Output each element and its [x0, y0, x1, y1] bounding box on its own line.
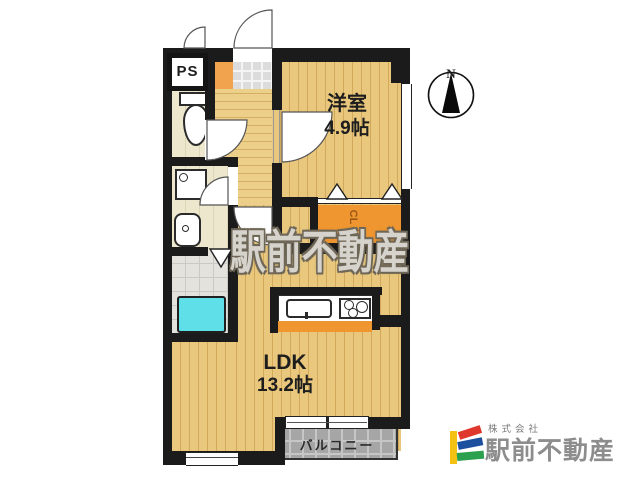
western-room-size: 4.9帖	[287, 117, 407, 141]
ps-label: PS	[172, 63, 203, 80]
logo-green-bar	[457, 451, 485, 461]
balcony-label: バルコニー	[278, 435, 396, 454]
washroom-doorway	[228, 167, 238, 205]
pillar	[391, 62, 410, 83]
wall	[172, 247, 208, 256]
entrance-tile	[233, 62, 272, 89]
entrance-door-arc	[234, 10, 272, 48]
ldk-size: 13.2帖	[215, 375, 355, 398]
logo-yellow-bar	[450, 431, 457, 464]
logo-company-name: 駅前不動産	[485, 431, 615, 467]
window	[186, 452, 238, 466]
meter-box-door-arc	[184, 27, 205, 48]
window-midline	[186, 457, 238, 458]
toilet-doorway	[205, 120, 215, 160]
wall	[372, 287, 380, 330]
kitchen-base-strip	[278, 321, 372, 332]
floor-plan-image: PS 洋室 4.9帖 LDK 13.2帖 CL バルコニー N 駅前不動産 株式…	[0, 0, 640, 480]
wall	[272, 48, 410, 62]
wall	[272, 62, 282, 110]
wall	[380, 315, 401, 327]
western-room-doorway	[273, 110, 274, 163]
company-logo: 株式会社 駅前不動産	[440, 418, 630, 470]
wall	[163, 333, 237, 342]
entrance-step	[215, 62, 233, 89]
western-room-label: 洋室 4.9帖	[287, 92, 407, 141]
wall	[163, 48, 172, 465]
sink-faucet	[305, 312, 308, 319]
western-room-doorway	[279, 110, 280, 163]
stove-burner	[348, 308, 358, 318]
wall	[369, 417, 402, 429]
wall	[272, 287, 382, 295]
bathtub	[177, 296, 226, 333]
pipe-space-box: PS	[167, 53, 208, 91]
wall	[270, 287, 278, 333]
closet-door-line	[318, 198, 401, 204]
wall	[172, 157, 228, 166]
compass-n-label: N	[443, 66, 459, 82]
washer-drain	[179, 173, 188, 182]
window-midline	[287, 422, 367, 423]
ldk-label: LDK 13.2帖	[215, 350, 355, 398]
basin-drain	[182, 225, 189, 232]
western-room-name: 洋室	[287, 92, 407, 117]
kitchen-sink	[286, 299, 332, 318]
ldk-name: LDK	[215, 350, 355, 375]
watermark-text: 駅前不動産	[230, 216, 409, 282]
